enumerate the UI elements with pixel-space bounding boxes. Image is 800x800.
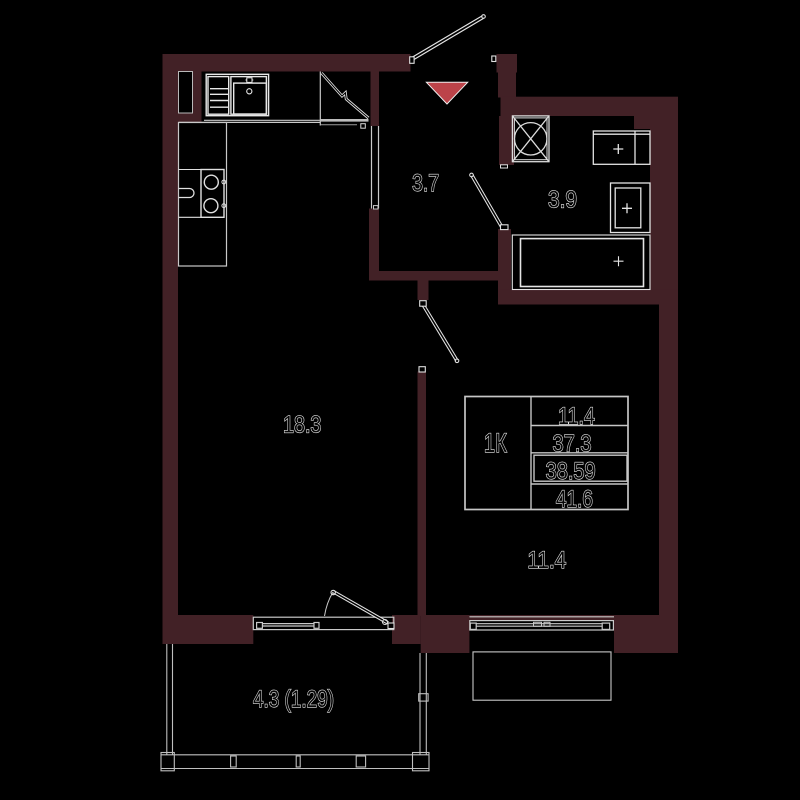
svg-text:3.7: 3.7 <box>412 170 439 197</box>
svg-text:37.3: 37.3 <box>553 431 592 458</box>
svg-text:11.4: 11.4 <box>558 403 595 430</box>
svg-text:4.3 (1.29): 4.3 (1.29) <box>253 686 334 713</box>
svg-text:1К: 1К <box>484 428 507 458</box>
svg-text:11.4: 11.4 <box>527 547 566 574</box>
svg-text:3.9: 3.9 <box>548 187 577 214</box>
svg-text:18.3: 18.3 <box>283 411 322 438</box>
svg-text:38.59: 38.59 <box>546 458 596 485</box>
svg-text:41.6: 41.6 <box>556 486 593 513</box>
